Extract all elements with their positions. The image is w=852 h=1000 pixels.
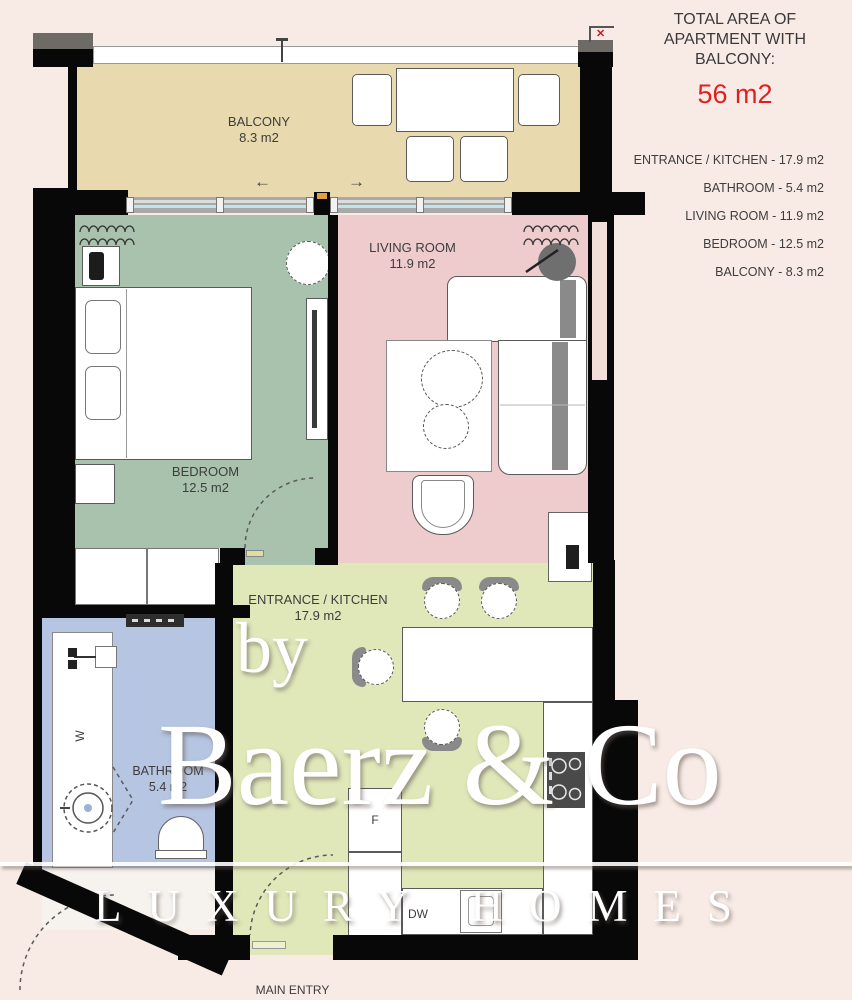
balcony-table <box>396 68 514 132</box>
legend-item-kitchen: ENTRANCE / KITCHEN - 17.9 m2 <box>600 146 824 174</box>
survey-bracket-stem <box>589 26 591 42</box>
wall-bottom-left-segment <box>178 935 250 960</box>
wall-right-inset <box>592 222 607 380</box>
balcony-chair-left <box>352 74 392 126</box>
bar-stool <box>477 577 521 621</box>
watermark-brand: Baerz & Co <box>158 706 722 824</box>
wall-divider-bedroom-living <box>328 215 338 563</box>
column-top-left-cap <box>33 33 93 50</box>
living-area: 11.9 m2 <box>335 256 490 272</box>
legend-item-bedroom: BEDROOM - 12.5 m2 <box>600 230 824 258</box>
living-label: LIVING ROOM 11.9 m2 <box>335 240 490 272</box>
summary-total: 56 m2 <box>632 86 838 102</box>
wall-bottom-right-segment <box>333 935 638 960</box>
main-entry-label: MAIN ENTRY <box>245 982 340 998</box>
faucet-knob <box>68 648 77 657</box>
bedroom-area: 12.5 m2 <box>128 480 283 496</box>
summary-title: TOTAL AREA OF APARTMENT WITH BALCONY: <box>632 10 838 70</box>
sofa-armrest-side <box>552 342 568 470</box>
wall-top-left-segment <box>75 190 128 215</box>
faucet-line <box>74 656 96 658</box>
window-mullion <box>330 197 338 213</box>
living-name: LIVING ROOM <box>335 240 490 256</box>
sofa-armrest-top <box>560 280 576 338</box>
watermark-rule <box>0 862 852 866</box>
window-mullion <box>416 197 424 213</box>
kitchen-name: ENTRANCE / KITCHEN <box>228 592 408 608</box>
kitchen-bar-counter <box>402 627 593 702</box>
balcony-label: BALCONY 8.3 m2 <box>199 114 319 146</box>
watermark-tagline: LUXURY HOMES <box>0 884 852 929</box>
wall-left-main <box>33 188 75 610</box>
wall-right-kitchen-upper <box>593 560 615 705</box>
floor-plan-page: ← → ✕ <box>0 0 852 1000</box>
faucet-knob <box>68 660 77 669</box>
tv-screen <box>312 310 317 428</box>
plant-circle <box>538 243 576 281</box>
window-post-tab <box>317 193 327 199</box>
window-mullion <box>216 197 224 213</box>
railing-mark-stem <box>281 40 283 62</box>
bedroom-side-table <box>286 241 330 285</box>
wall-top-right-segment <box>512 192 645 215</box>
window-mullion <box>126 197 134 213</box>
wall-left-bathroom <box>33 610 42 872</box>
bathroom-sink <box>95 646 117 668</box>
bar-stool <box>420 577 464 621</box>
wardrobe-left <box>75 548 147 605</box>
column-top-left <box>33 49 93 67</box>
side-cabinet-device <box>566 545 579 569</box>
entry-door-leaf <box>252 941 286 949</box>
bed-fold-line <box>126 289 127 458</box>
bedside-lamp <box>89 252 104 280</box>
window-mullion <box>504 197 512 213</box>
watermark-by: by <box>236 612 308 684</box>
balcony-chair-bottom-2 <box>460 136 508 182</box>
nightstand-bottom <box>75 464 115 504</box>
sliding-arrow-left: ← <box>254 172 271 192</box>
sofa-seat <box>498 340 587 475</box>
bedroom-name: BEDROOM <box>128 464 283 480</box>
pouf-small <box>423 404 469 449</box>
bedroom-label: BEDROOM 12.5 m2 <box>128 464 283 496</box>
bar-stool <box>352 645 396 689</box>
balcony-chair-bottom-1 <box>406 136 454 182</box>
summary-panel: TOTAL AREA OF APARTMENT WITH BALCONY: 56… <box>632 10 838 102</box>
pouf-large <box>421 350 483 408</box>
close-icon: ✕ <box>596 27 605 40</box>
pillow-2 <box>85 366 121 420</box>
window-mullion <box>306 197 314 213</box>
sliding-arrow-right: → <box>348 172 365 192</box>
bedroom-door-tab <box>246 550 264 557</box>
wall-bedroom-door-post-right <box>315 548 338 565</box>
wall-balcony-left <box>68 63 77 192</box>
balcony-area: 8.3 m2 <box>199 130 319 146</box>
tv-unit <box>306 298 328 440</box>
balcony-name: BALCONY <box>199 114 319 130</box>
balcony-chair-right <box>518 74 560 126</box>
legend: ENTRANCE / KITCHEN - 17.9 m2 BATHROOM - … <box>600 146 824 286</box>
toilet-tank <box>155 850 207 859</box>
wall-balcony-right <box>580 55 612 195</box>
wardrobe-right <box>147 548 219 605</box>
lounge-chair-inner <box>421 480 465 528</box>
washer-label: W <box>72 726 88 746</box>
towel-radiator-dashes <box>132 619 178 622</box>
balcony-railing <box>93 46 580 64</box>
legend-item-balcony: BALCONY - 8.3 m2 <box>600 258 824 286</box>
pillow-1 <box>85 300 121 354</box>
